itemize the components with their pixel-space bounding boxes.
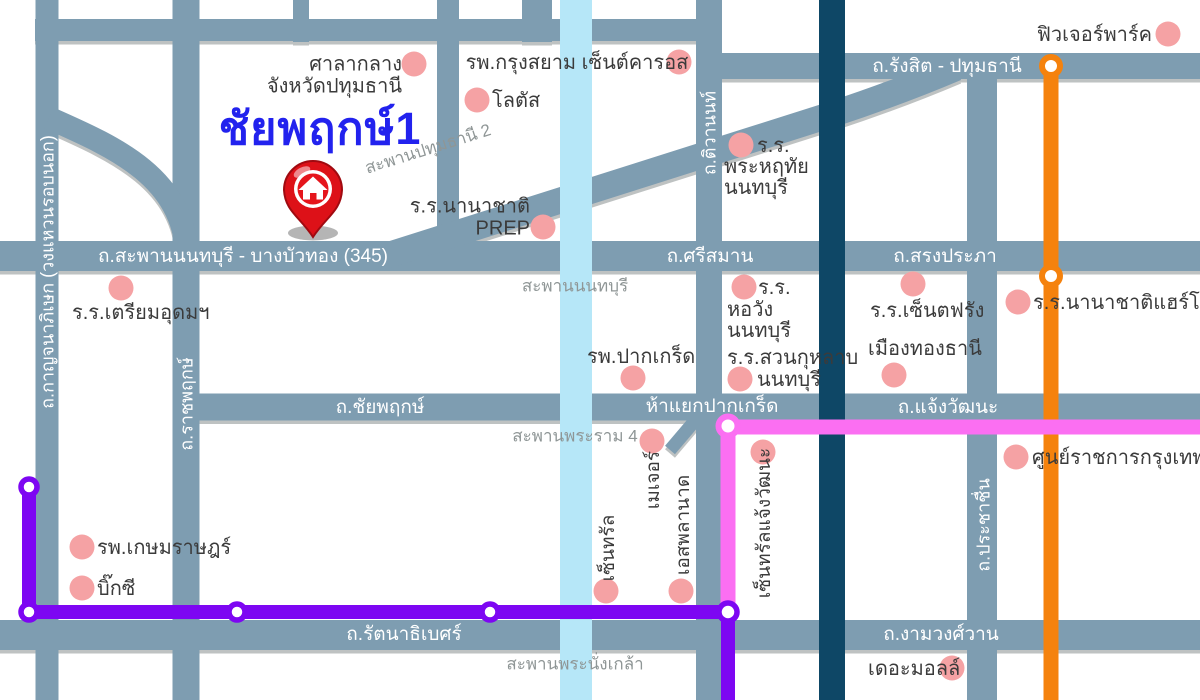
station-orange-2 [1042, 267, 1060, 285]
poi-dot-harrow [1006, 290, 1031, 315]
road-label-hayaek-pakkret: ห้าแยกปากเกร็ด [646, 391, 779, 421]
station-purple-4 [482, 604, 498, 620]
station-purple-2 [21, 604, 37, 620]
poi-dot-kasemrad [70, 535, 95, 560]
place-the-mall: เดอะมอลล์ [868, 652, 960, 684]
road-label-345: ถ.สะพานนนทบุรี - บางบัวทอง (345) [98, 241, 388, 271]
bridge-label-rama4: สะพานพระราม 4 [512, 423, 637, 450]
place-muang-thong-thani: เมืองทองธานี [868, 332, 982, 364]
poi-dot-central [594, 579, 619, 604]
place-lotus: โลตัส [492, 84, 540, 116]
place-triam-udom: ร.ร.เตรียมอุดมฯ [72, 296, 209, 328]
poi-dot-big-c [70, 576, 95, 601]
road-label-rattanathibet: ถ.รัตนาธิเบศร์ [346, 619, 461, 649]
house-icon-door [310, 193, 317, 200]
road-label-chaiyaphruek: ถ.ชัยพฤกษ์ [336, 392, 425, 422]
place-central-chaengwatthana: เซ็นทรัลแจ้งวัฒนะ [749, 448, 779, 598]
road-label-chaengwatthana: ถ.แจ้งวัฒนะ [898, 392, 998, 422]
place-city-hall-line1: ศาลากลาง [267, 54, 402, 76]
place-suankularb-line2: นนทบุรี [757, 363, 821, 395]
place-future-park: ฟิวเจอร์พาร์ค [1037, 18, 1152, 50]
road-label-srisaman: ถ.ศรีสมาน [667, 241, 754, 271]
place-saint-francois: ร.ร.เซ็นตฟรัง [870, 294, 984, 326]
place-central: เซ็นทรัล [593, 515, 623, 582]
place-prep-line1: ร.ร.นานาชาติ [410, 196, 530, 218]
road-label-ratchaphruek: ถ.ราชพฤกษ์ [172, 357, 201, 450]
road-label-kanchanaphisek: ถ.กาญจนาภิเษก (วงแหวนรอบนอก) [33, 135, 62, 409]
map-canvas: ชัยพฤกษ์1 ถ.รังสิต - ปทุมธานี ถ.สะพานนนท… [0, 0, 1200, 700]
poi-dot-future-park [1156, 22, 1181, 47]
station-purple-3 [229, 604, 245, 620]
poi-dot-saint-francois [901, 272, 926, 297]
place-city-hall: ศาลากลาง จังหวัดปทุมธานี [267, 54, 402, 99]
place-prep-school: ร.ร.นานาชาติ PREP [410, 196, 530, 241]
place-city-hall-line2: จังหวัดปทุมธานี [267, 76, 402, 98]
road-label-songprapha: ถ.สรงประภา [893, 241, 997, 271]
station-orange-1 [1042, 57, 1060, 75]
place-esplanade: เอสพลานาด [668, 475, 698, 575]
station-purple-pink-junction [719, 603, 737, 621]
place-kasemrad-hospital: รพ.เกษมราษฎร์ [97, 531, 231, 563]
poi-dot-government-complex [1004, 445, 1029, 470]
bridge-label-nonthaburi: สะพานนนทบุรี [522, 273, 628, 300]
poi-dot-esplanade [669, 579, 694, 604]
road-label-rangsit: ถ.รังสิต - ปทุมธานี [872, 51, 1021, 81]
place-government-complex: ศูนย์ราชการกรุงเทพฯ [1032, 441, 1200, 473]
road-label-tiwanon: ถ.ติวานนท์ [695, 91, 724, 175]
bridge-label-phranangklao: สะพานพระนั่งเกล้า [506, 651, 643, 678]
poi-dot-city-hall [402, 52, 427, 77]
road-label-prachachuen: ถ.ประชาชื่น [969, 478, 998, 572]
road-ramp-curve [49, 118, 187, 256]
place-phraharuthai-line3: นนทบุรี [724, 171, 788, 203]
place-harrow: ร.ร.นานาชาติแฮร์โรว์ [1033, 286, 1200, 318]
poi-dot-muang-thong [882, 363, 907, 388]
place-krungsiam-hospital: รพ.กรุงสยาม เซ็นต์คารอส [466, 46, 689, 78]
place-major: เมเจอร์ [638, 451, 668, 509]
location-pin [284, 161, 342, 241]
place-big-c: บิ๊กซี [97, 572, 135, 604]
place-prep-line2: PREP [410, 218, 530, 240]
road-label-ngamwongwan: ถ.งามวงศ์วาน [883, 619, 999, 649]
station-purple-1 [21, 479, 37, 495]
poi-dot-lotus [465, 88, 490, 113]
poi-dot-major [640, 429, 665, 454]
poi-dot-prep [531, 215, 556, 240]
place-pakkret-hospital: รพ.ปากเกร็ด [587, 340, 695, 372]
